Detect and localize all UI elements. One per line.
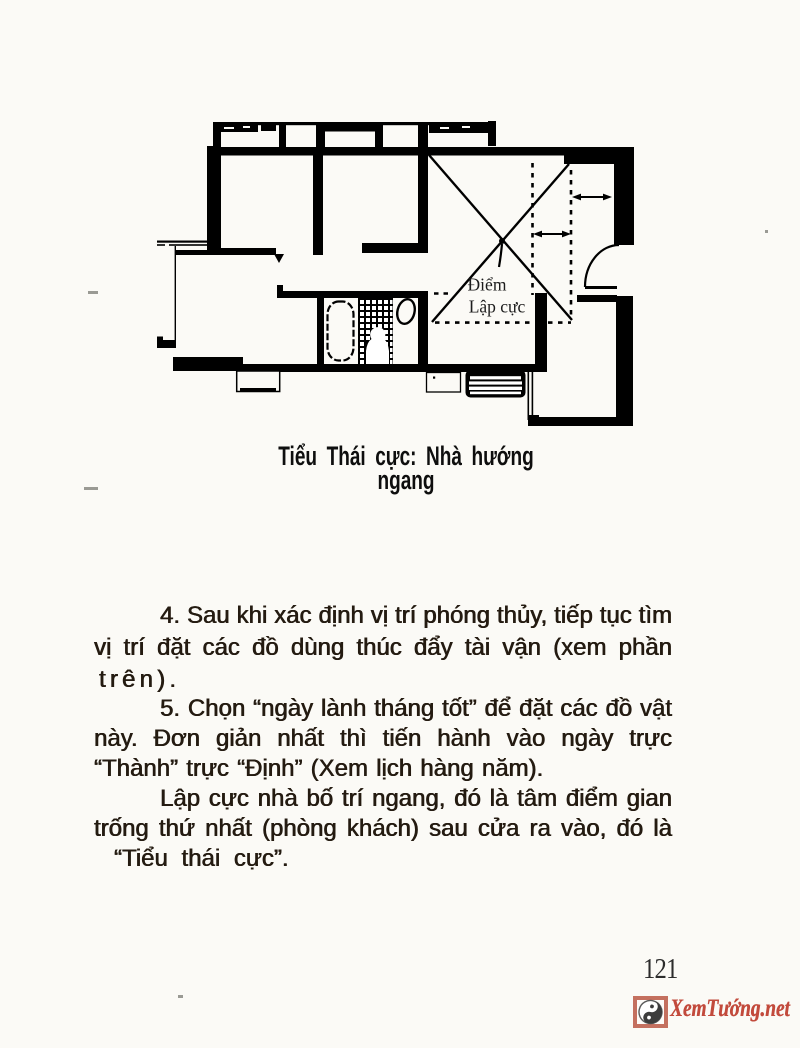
svg-text:Điểm: Điểm (468, 275, 507, 295)
svg-text:Lập cực: Lập cực (469, 297, 526, 317)
